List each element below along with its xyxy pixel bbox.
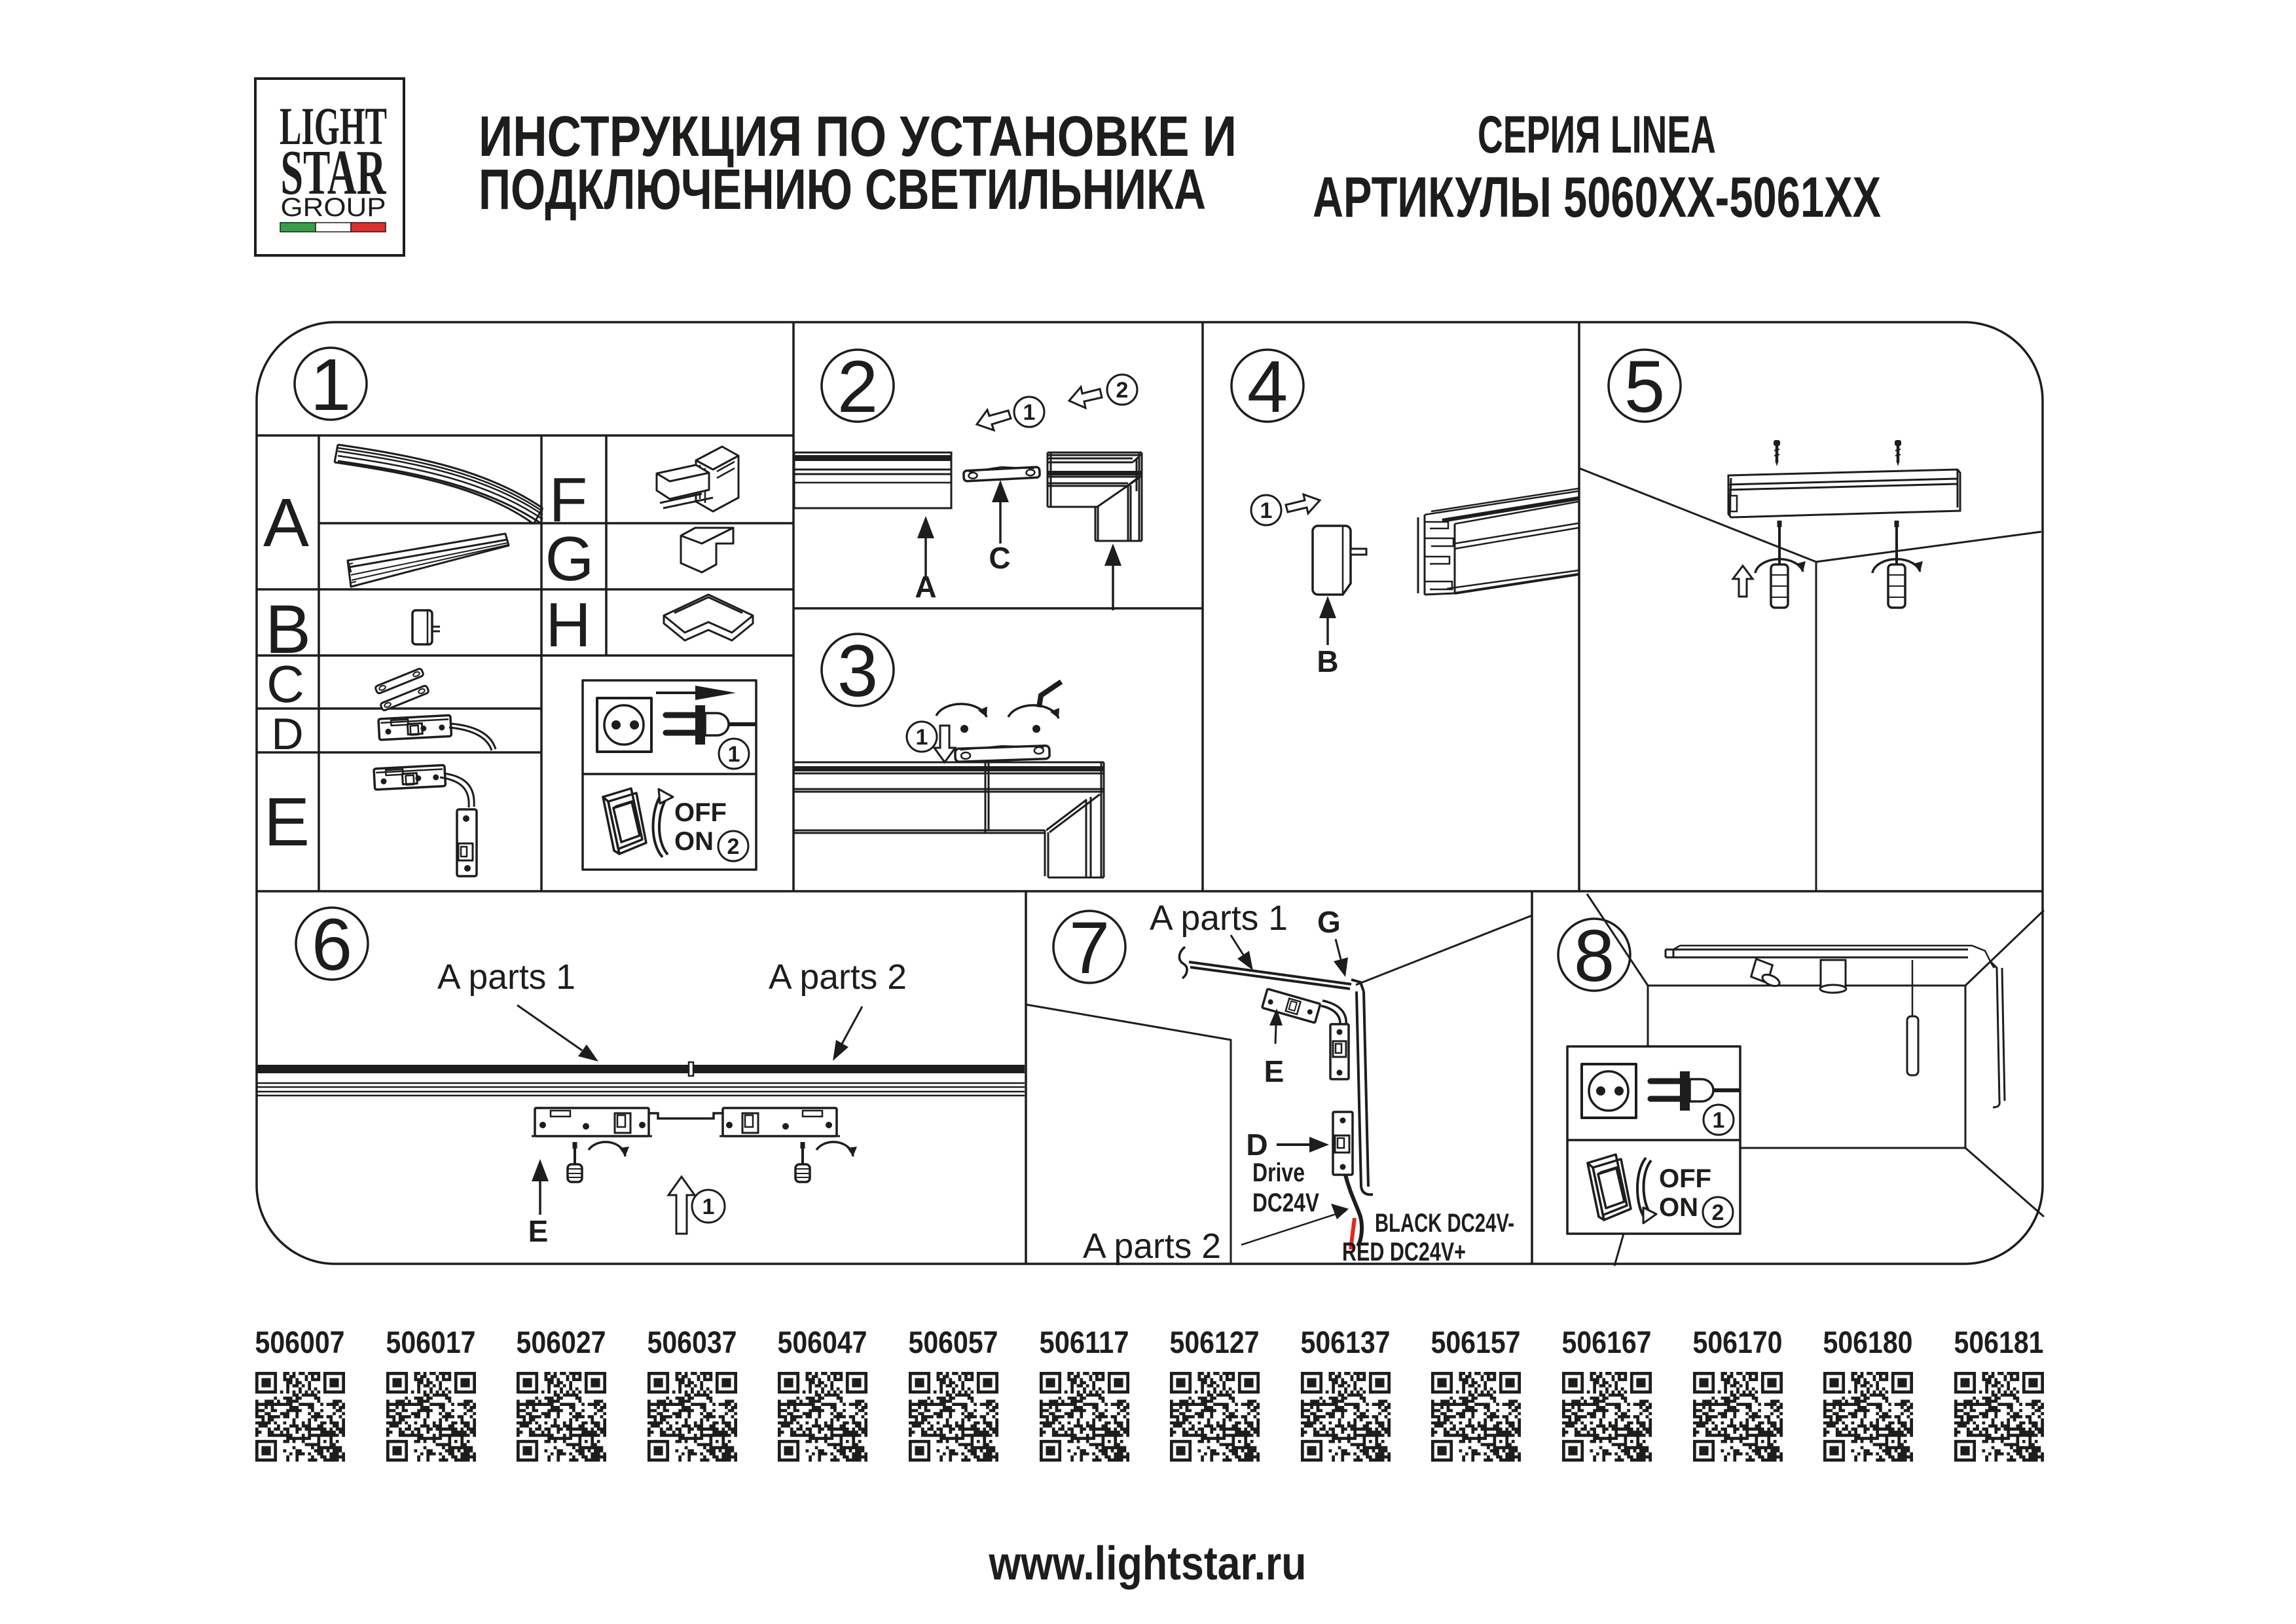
svg-text:2: 2 bbox=[1116, 378, 1129, 403]
svg-text:АРТИКУЛЫ 5060XX-5061XX: АРТИКУЛЫ 5060XX-5061XX bbox=[1313, 166, 1881, 229]
svg-text:C: C bbox=[266, 655, 304, 713]
svg-text:E: E bbox=[1264, 1054, 1285, 1088]
svg-text:H: H bbox=[545, 590, 591, 660]
svg-text:506170: 506170 bbox=[1693, 1325, 1783, 1359]
svg-text:1: 1 bbox=[310, 344, 351, 426]
svg-text:C: C bbox=[989, 541, 1010, 575]
svg-text:D: D bbox=[271, 709, 303, 759]
svg-text:www.lightstar.ru: www.lightstar.ru bbox=[989, 1538, 1307, 1590]
svg-text:A parts 2: A parts 2 bbox=[1083, 1227, 1221, 1266]
svg-text:6: 6 bbox=[312, 904, 352, 986]
svg-text:506047: 506047 bbox=[778, 1325, 867, 1359]
svg-text:BLACK DC24V-: BLACK DC24V- bbox=[1375, 1209, 1514, 1238]
svg-text:506007: 506007 bbox=[255, 1325, 345, 1359]
svg-text:3: 3 bbox=[837, 630, 878, 712]
svg-text:A parts 2: A parts 2 bbox=[769, 957, 907, 997]
svg-text:A parts 1: A parts 1 bbox=[1150, 898, 1288, 938]
svg-text:7: 7 bbox=[1069, 907, 1110, 989]
svg-text:506180: 506180 bbox=[1823, 1325, 1913, 1359]
svg-text:D: D bbox=[1246, 1128, 1267, 1162]
svg-text:ON: ON bbox=[1659, 1193, 1698, 1222]
svg-text:GROUP: GROUP bbox=[281, 193, 386, 222]
svg-text:4: 4 bbox=[1247, 346, 1288, 428]
svg-text:ON: ON bbox=[674, 827, 714, 856]
svg-text:506017: 506017 bbox=[386, 1325, 476, 1359]
svg-text:506127: 506127 bbox=[1170, 1325, 1260, 1359]
svg-text:1: 1 bbox=[1260, 498, 1273, 523]
svg-text:1: 1 bbox=[916, 725, 928, 750]
svg-text:E: E bbox=[528, 1214, 549, 1248]
svg-text:RED DC24V+: RED DC24V+ bbox=[1342, 1238, 1466, 1266]
svg-text:506037: 506037 bbox=[647, 1325, 737, 1359]
svg-text:506137: 506137 bbox=[1301, 1325, 1391, 1359]
svg-text:506057: 506057 bbox=[909, 1325, 998, 1359]
svg-text:OFF: OFF bbox=[1659, 1164, 1711, 1193]
svg-text:2: 2 bbox=[837, 346, 878, 428]
svg-text:506181: 506181 bbox=[1954, 1325, 2044, 1359]
svg-text:A parts 1: A parts 1 bbox=[437, 957, 575, 997]
svg-text:506117: 506117 bbox=[1040, 1325, 1129, 1359]
svg-text:1: 1 bbox=[1713, 1108, 1725, 1133]
svg-text:G: G bbox=[545, 524, 594, 594]
svg-text:A: A bbox=[263, 485, 309, 561]
svg-text:2: 2 bbox=[1712, 1200, 1724, 1225]
svg-text:2: 2 bbox=[727, 834, 740, 859]
svg-text:5: 5 bbox=[1624, 346, 1665, 428]
svg-text:OFF: OFF bbox=[674, 798, 727, 827]
svg-text:506027: 506027 bbox=[517, 1325, 606, 1359]
svg-text:Drive: Drive bbox=[1252, 1158, 1305, 1187]
svg-text:1: 1 bbox=[728, 742, 740, 767]
svg-text:G: G bbox=[1317, 905, 1341, 939]
svg-text:B: B bbox=[1317, 644, 1338, 678]
svg-text:СЕРИЯ LINEA: СЕРИЯ LINEA bbox=[1478, 105, 1716, 164]
svg-text:E: E bbox=[264, 784, 310, 860]
svg-text:1: 1 bbox=[1023, 400, 1036, 425]
svg-text:ПОДКЛЮЧЕНИЮ СВЕТИЛЬНИКА: ПОДКЛЮЧЕНИЮ СВЕТИЛЬНИКА bbox=[479, 158, 1206, 221]
svg-text:1: 1 bbox=[702, 1194, 715, 1219]
svg-text:DC24V: DC24V bbox=[1252, 1189, 1319, 1217]
svg-text:506167: 506167 bbox=[1562, 1325, 1652, 1359]
svg-text:506157: 506157 bbox=[1431, 1325, 1521, 1359]
